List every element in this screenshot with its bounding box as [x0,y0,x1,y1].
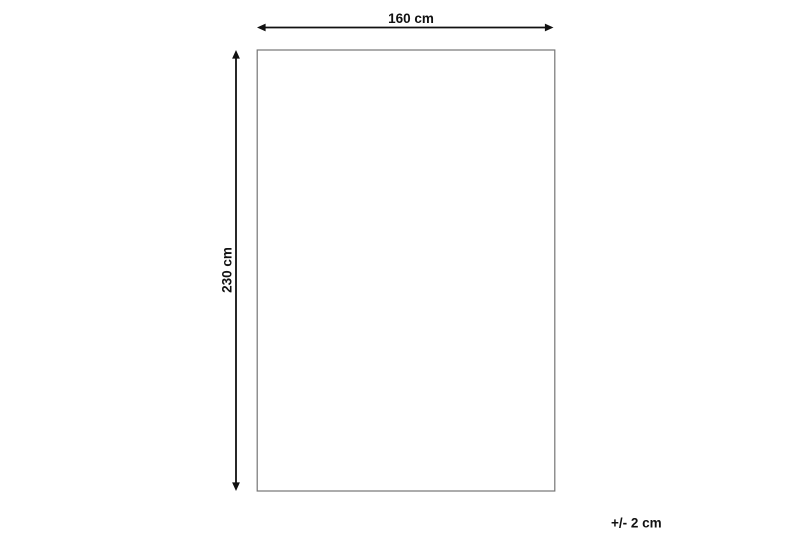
svg-text:160 cm: 160 cm [388,11,434,26]
svg-text:230 cm: 230 cm [220,247,235,293]
svg-text:+/- 2 cm: +/- 2 cm [611,516,662,531]
